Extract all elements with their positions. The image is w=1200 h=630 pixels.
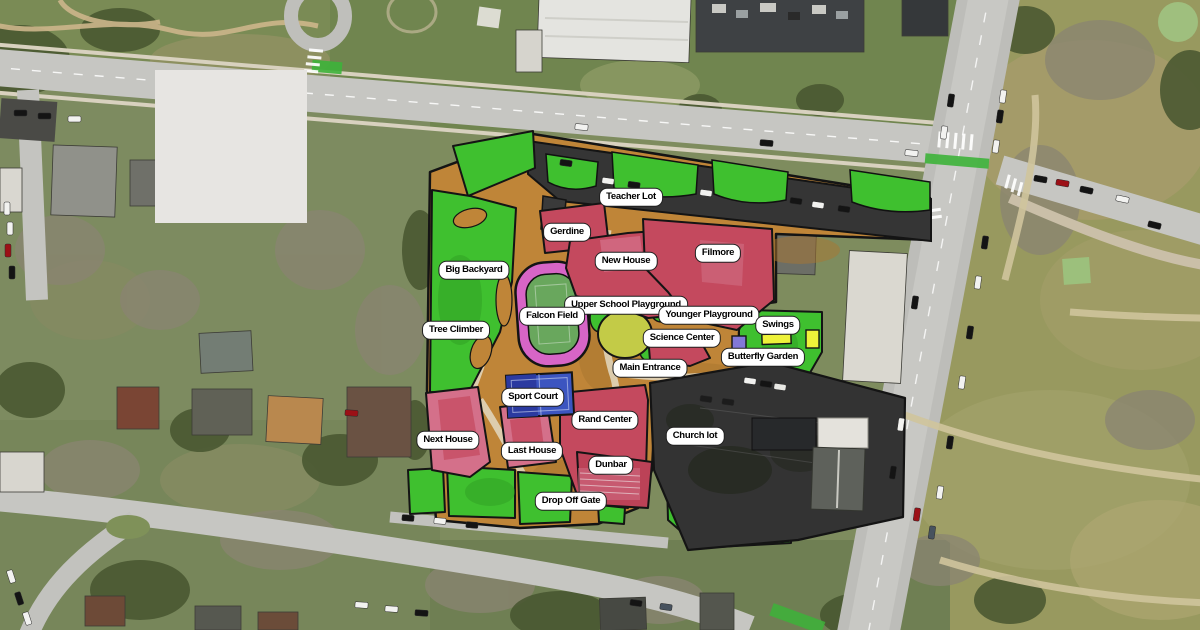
map-label-filmore: Filmore [695,244,741,263]
map-label-science-center: Science Center [643,329,721,348]
map-label-falcon-field: Falcon Field [519,307,585,326]
map-label-butterfly-garden: Butterfly Garden [721,348,805,367]
map-label-tree-climber: Tree Climber [422,321,490,340]
map-label-big-backyard: Big Backyard [438,261,509,280]
map-label-rand-center: Rand Center [571,411,638,430]
map-label-main-entrance: Main Entrance [612,359,687,378]
map-label-drop-off-gate: Drop Off Gate [535,492,607,511]
map-label-next-house: Next House [416,431,479,450]
map-label-teacher-lot: Teacher Lot [599,188,663,207]
map-label-gerdine: Gerdine [543,223,591,242]
blank-overlay-box [155,70,307,223]
map-label-last-house: Last House [501,442,563,461]
map-label-church-lot: Church lot [666,427,725,446]
map-label-dunbar: Dunbar [588,456,633,475]
map-label-sport-court: Sport Court [501,388,564,407]
map-label-swings: Swings [755,316,800,335]
campus-map-screenshot: Teacher Lot Gerdine New House Filmore Bi… [0,0,1200,630]
map-label-younger-playground: Younger Playground [658,306,759,325]
map-label-new-house: New House [595,252,658,271]
